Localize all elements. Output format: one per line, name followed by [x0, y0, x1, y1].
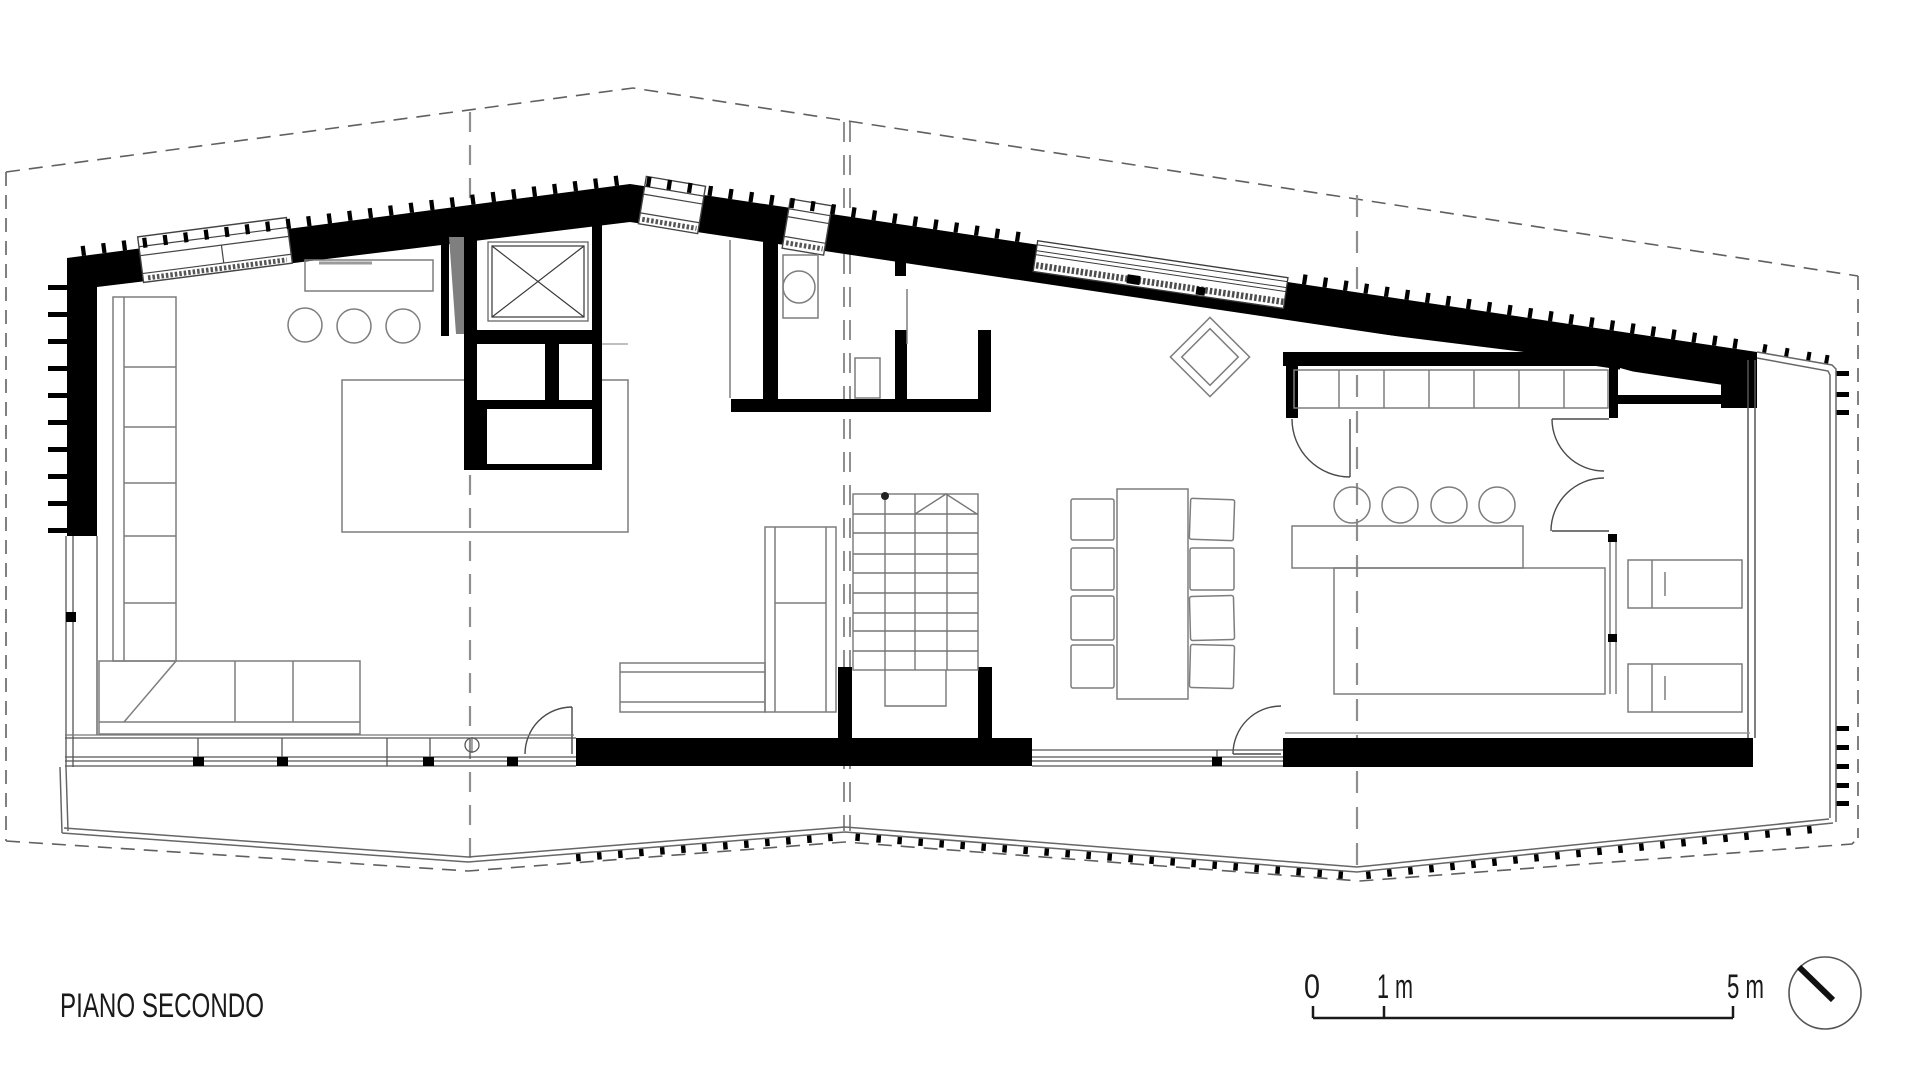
svg-text:PIANO SECONDO: PIANO SECONDO [60, 987, 264, 1025]
svg-text:1 m: 1 m [1377, 968, 1413, 1006]
svg-text:5 m: 5 m [1727, 968, 1764, 1006]
svg-text:0: 0 [1304, 968, 1320, 1006]
